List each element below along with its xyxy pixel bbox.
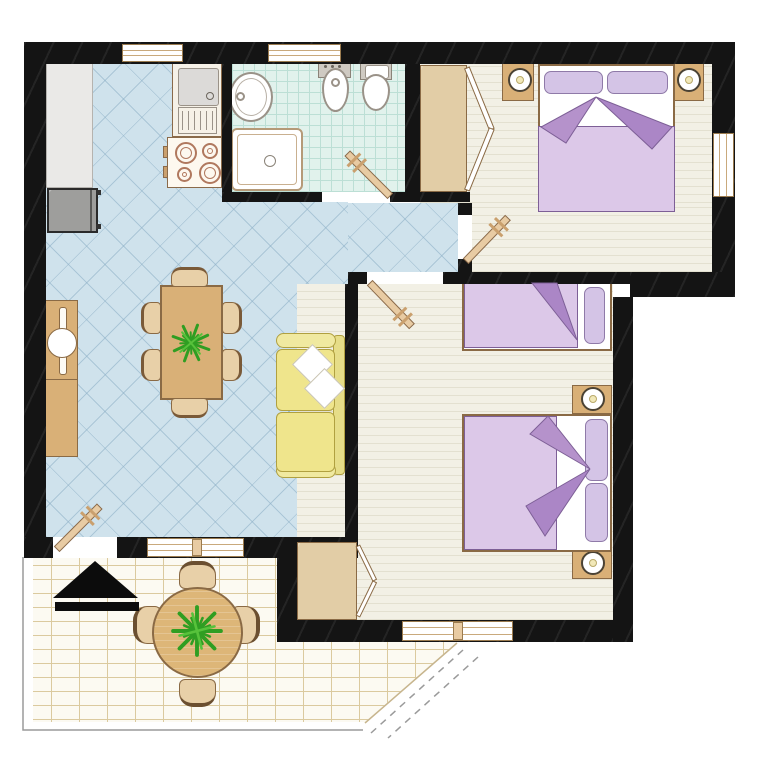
bed1-blanket — [538, 126, 675, 212]
sideboard-divider — [44, 379, 77, 380]
stove-burner-4 — [199, 162, 221, 184]
threshold-bathroom — [322, 192, 390, 202]
sofa-cushion-2 — [276, 412, 335, 472]
lamp-left — [508, 68, 532, 92]
kitchen-sink-cabinet — [172, 63, 222, 137]
threshold-bedroom-2 — [367, 272, 443, 284]
dining-chair-bottom — [171, 398, 208, 418]
stove-burner-3 — [177, 167, 192, 182]
dining-chair-top — [171, 267, 208, 287]
sink-drainer — [178, 107, 217, 134]
dining-chair-left-1 — [141, 302, 161, 334]
fridge-hinge — [96, 190, 101, 195]
terrace-chair-top — [179, 561, 216, 589]
single-bed-blanket — [464, 283, 578, 348]
sideboard — [43, 300, 78, 457]
lamp-right — [677, 68, 701, 92]
wall-bedroom1-bottom-right — [630, 272, 735, 297]
room-floor-bedroom-1-lower — [472, 203, 712, 272]
bathroom-window — [268, 44, 341, 62]
bed2-pillow-top — [585, 419, 608, 481]
wall-kitchen-bathroom — [222, 64, 232, 202]
wall-bathroom-right — [405, 64, 420, 202]
sofa-armrest-top — [276, 333, 336, 348]
threshold-entrance — [53, 537, 117, 558]
lamp-b2-top — [581, 387, 605, 411]
shower-drain — [264, 155, 276, 167]
single-bed-pillow — [584, 287, 605, 344]
wall-bedroom2-top-left — [348, 272, 367, 284]
closet-bedroom-2 — [297, 542, 357, 620]
living-room-window — [147, 538, 244, 557]
threshold-bedroom-1 — [458, 215, 472, 259]
dining-chair-right-2 — [222, 349, 242, 381]
bedroom-1-window — [713, 133, 734, 197]
stove-handle-top — [163, 146, 168, 158]
sideboard-knob — [47, 328, 77, 358]
kitchen-window — [122, 44, 183, 62]
sink-drain-dot — [206, 92, 214, 100]
stove-burner-1 — [175, 142, 197, 164]
shower-tray — [231, 128, 303, 191]
wall-bedroom2-right — [613, 297, 633, 642]
floor-plan — [0, 0, 760, 759]
wall-left — [24, 42, 46, 558]
dining-chair-right-1 — [222, 302, 242, 334]
bidet-dots — [324, 65, 327, 68]
room-floor-hallway — [348, 203, 462, 273]
terrace-round-table — [152, 587, 243, 678]
wardrobe-bedroom-1 — [420, 65, 467, 192]
dining-chair-left-2 — [141, 349, 161, 381]
stove-handle-bottom — [163, 166, 168, 178]
fridge-door-line — [90, 190, 92, 231]
lamp-b2-bottom — [581, 551, 605, 575]
stove-burner-2 — [202, 143, 218, 159]
refrigerator — [47, 188, 98, 233]
dining-table — [160, 285, 223, 400]
sofa — [275, 333, 345, 478]
bidet-hole — [331, 78, 340, 87]
washbasin-tap — [236, 92, 245, 101]
fridge-hinge-2 — [96, 224, 101, 229]
bedroom-2-window — [402, 621, 513, 641]
bed2-blanket — [464, 416, 557, 550]
wall-bedroom2-top-mid — [443, 272, 630, 284]
terrace-chair-bottom — [179, 679, 216, 707]
bed1-pillow-right — [607, 71, 668, 94]
window-mullion — [453, 622, 463, 640]
wall-bedroom2-left — [345, 284, 358, 558]
window-mullion — [192, 539, 202, 556]
bed2-pillow-bottom — [585, 483, 608, 542]
kitchen-counter — [46, 63, 93, 188]
bed1-pillow-left — [544, 71, 603, 94]
kitchen-sink — [178, 68, 219, 106]
